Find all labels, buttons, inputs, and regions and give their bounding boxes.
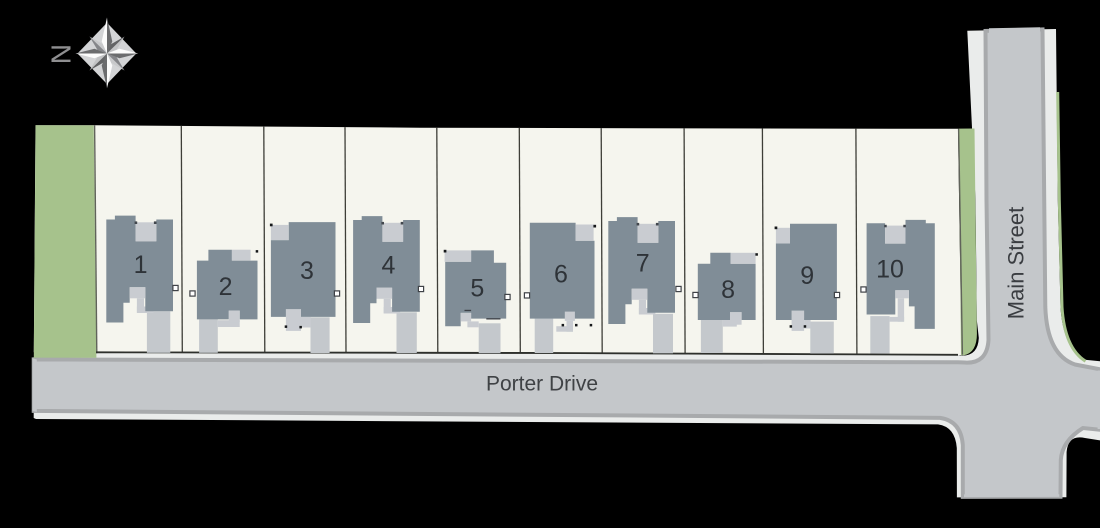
svg-text:7: 7	[636, 249, 650, 277]
svg-text:6: 6	[554, 261, 568, 289]
svg-text:Porter Drive: Porter Drive	[486, 373, 598, 396]
svg-text:1: 1	[134, 251, 148, 279]
svg-text:10: 10	[876, 256, 904, 284]
svg-text:2: 2	[219, 273, 233, 301]
svg-text:Main Street: Main Street	[1004, 207, 1029, 320]
svg-text:4: 4	[381, 252, 395, 280]
svg-text:5: 5	[470, 274, 484, 302]
svg-text:N: N	[46, 44, 77, 64]
svg-text:3: 3	[300, 257, 314, 285]
svg-text:9: 9	[800, 262, 814, 290]
svg-text:8: 8	[721, 276, 735, 304]
